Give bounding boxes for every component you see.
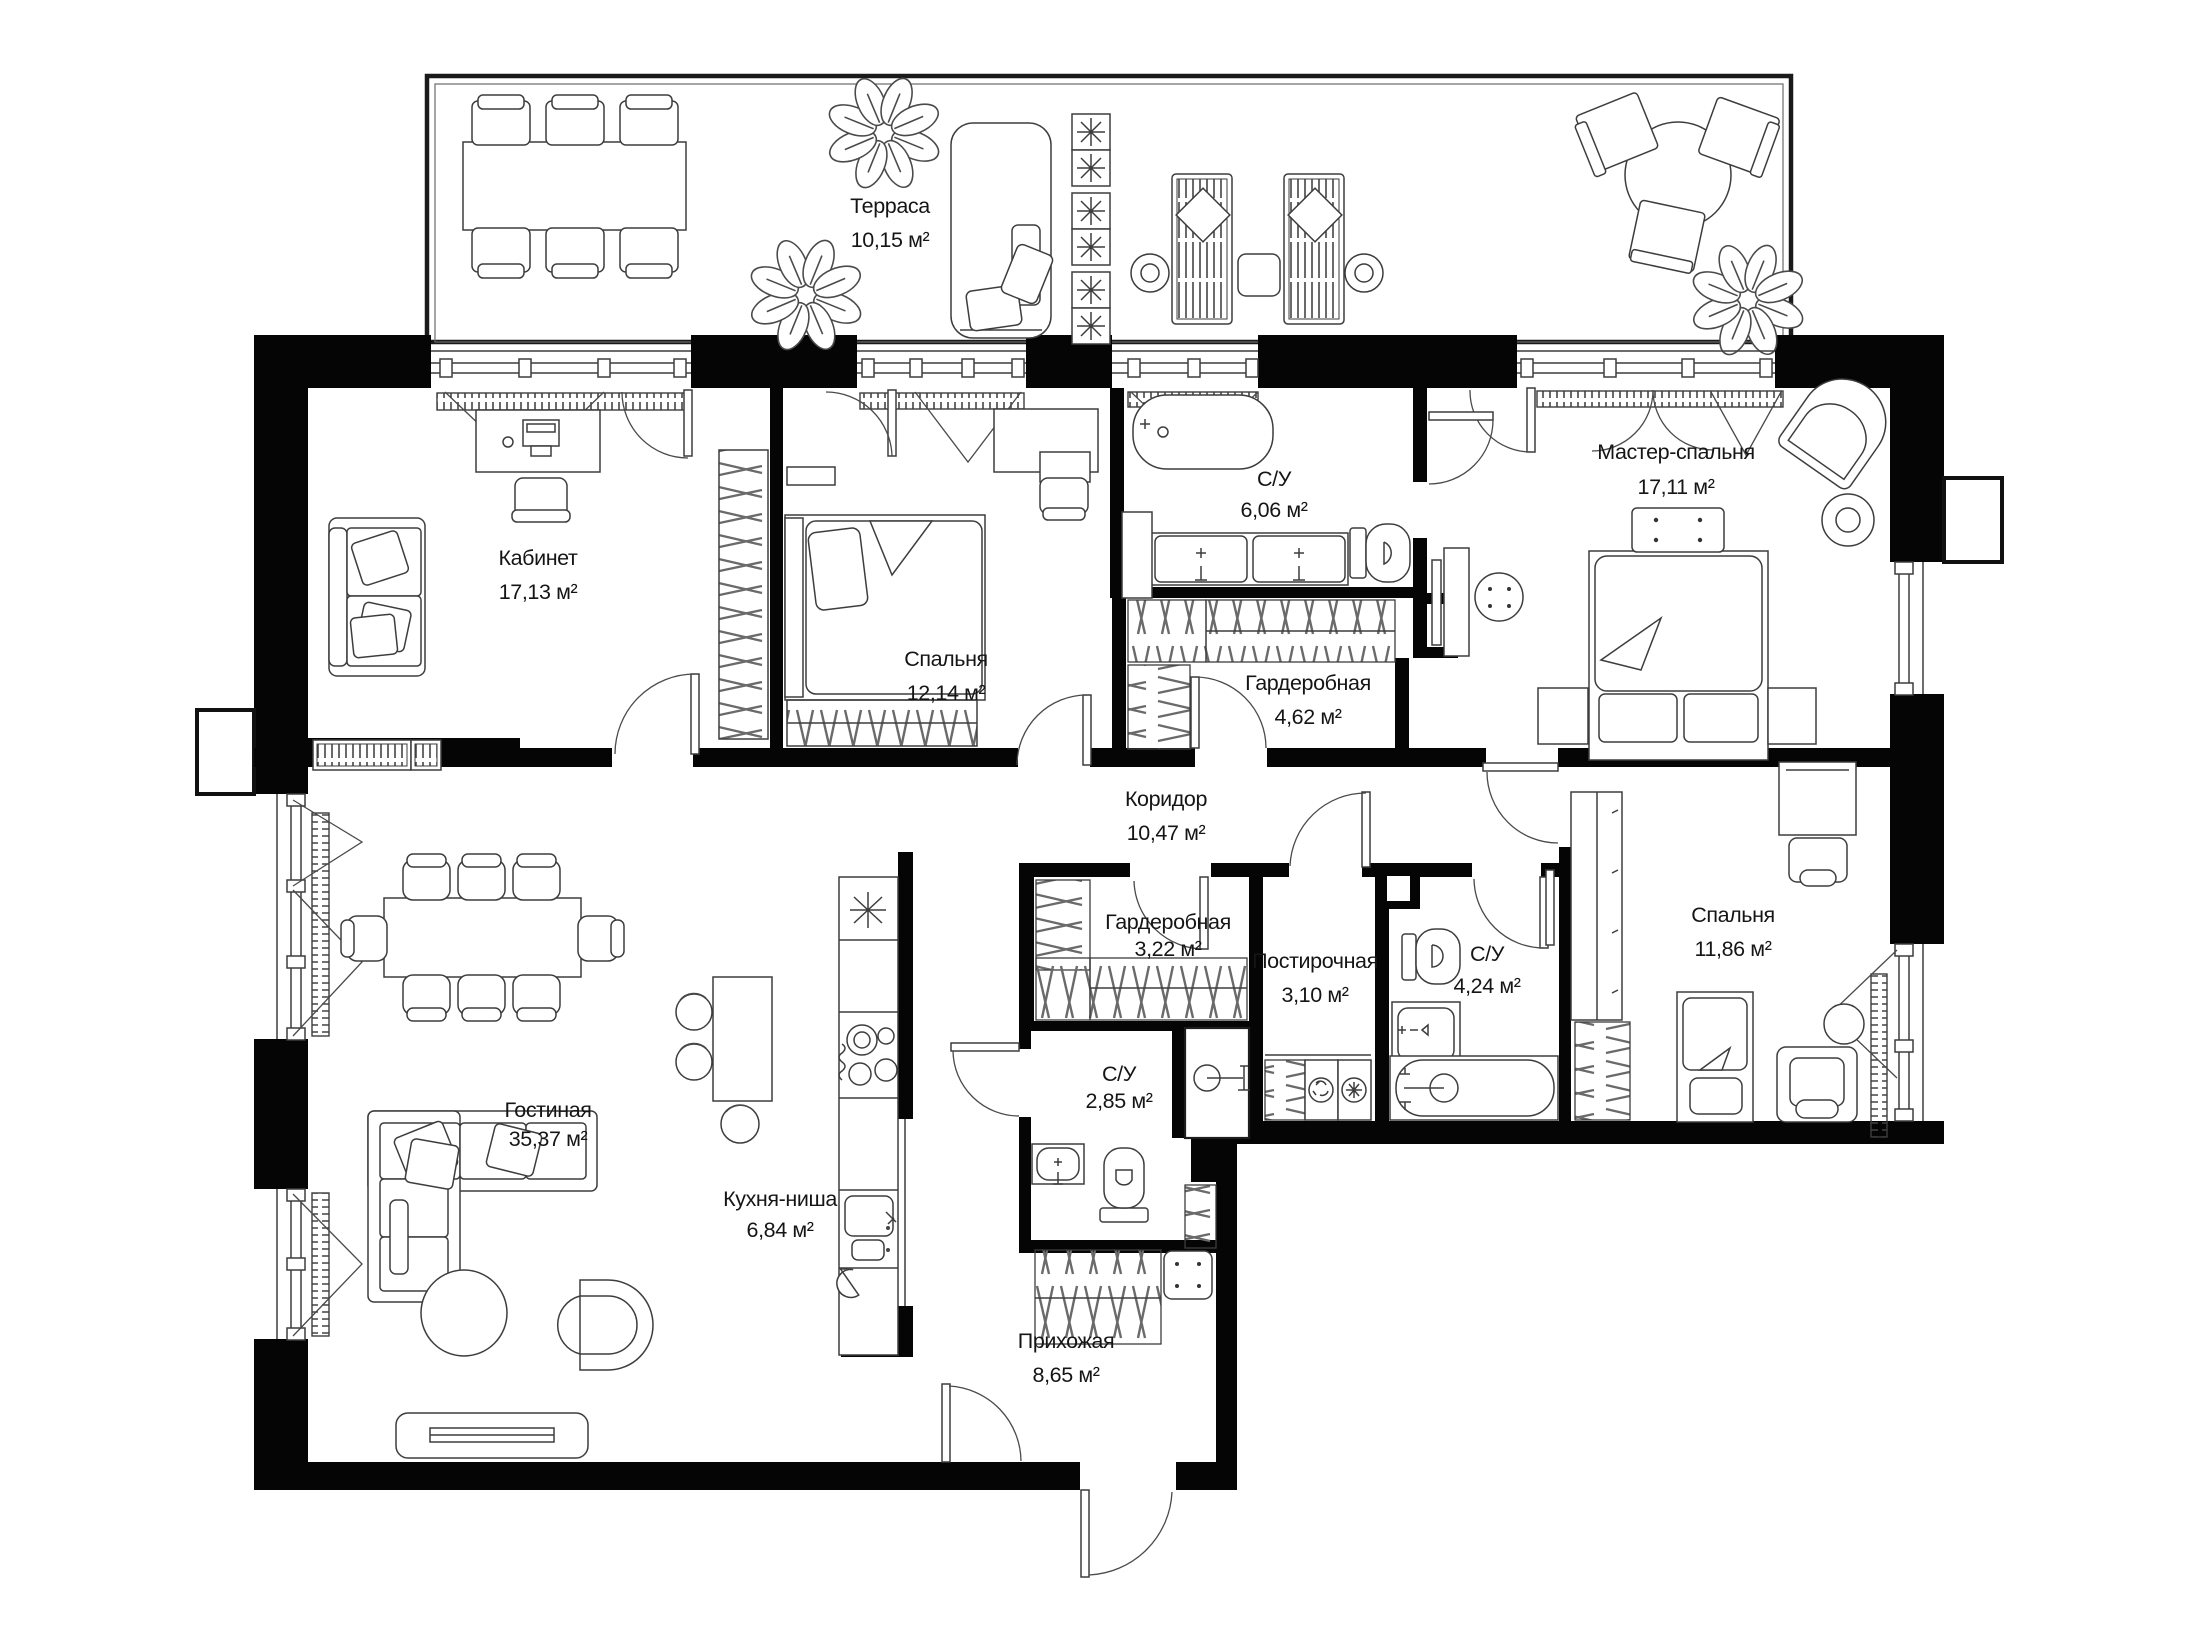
svg-text:Гостиная: Гостиная <box>504 1098 591 1122</box>
svg-text:6,06 м²: 6,06 м² <box>1241 498 1308 522</box>
svg-text:С/У: С/У <box>1102 1062 1137 1086</box>
svg-text:3,22 м²: 3,22 м² <box>1135 937 1202 961</box>
svg-text:Коридор: Коридор <box>1125 787 1208 811</box>
svg-text:35,37 м²: 35,37 м² <box>509 1127 588 1151</box>
svg-text:Терраса: Терраса <box>850 194 930 218</box>
svg-text:11,86 м²: 11,86 м² <box>1695 937 1772 961</box>
svg-text:С/У: С/У <box>1470 942 1505 966</box>
svg-text:Гардеробная: Гардеробная <box>1245 671 1371 695</box>
svg-text:4,62 м²: 4,62 м² <box>1275 705 1342 729</box>
svg-text:Спальня: Спальня <box>1691 903 1775 927</box>
svg-text:10,15 м²: 10,15 м² <box>851 228 930 252</box>
svg-text:Кухня-ниша: Кухня-ниша <box>723 1187 837 1211</box>
svg-text:6,84 м²: 6,84 м² <box>747 1218 814 1242</box>
svg-text:3,10 м²: 3,10 м² <box>1282 983 1349 1007</box>
svg-text:17,13 м²: 17,13 м² <box>499 580 578 604</box>
svg-text:4,24 м²: 4,24 м² <box>1454 974 1521 998</box>
svg-text:Постирочная: Постирочная <box>1252 949 1378 973</box>
svg-text:Прихожая: Прихожая <box>1018 1329 1114 1353</box>
svg-text:С/У: С/У <box>1257 467 1292 491</box>
svg-text:10,47 м²: 10,47 м² <box>1127 821 1206 845</box>
svg-text:17,11 м²: 17,11 м² <box>1638 475 1715 499</box>
svg-text:Мастер-спальня: Мастер-спальня <box>1597 440 1755 464</box>
svg-text:12,14 м²: 12,14 м² <box>907 681 986 705</box>
svg-text:8,65 м²: 8,65 м² <box>1033 1363 1100 1387</box>
svg-text:2,85 м²: 2,85 м² <box>1086 1089 1153 1113</box>
svg-text:Кабинет: Кабинет <box>499 546 579 570</box>
svg-text:Гардеробная: Гардеробная <box>1105 910 1231 934</box>
svg-text:Спальня: Спальня <box>904 647 988 671</box>
